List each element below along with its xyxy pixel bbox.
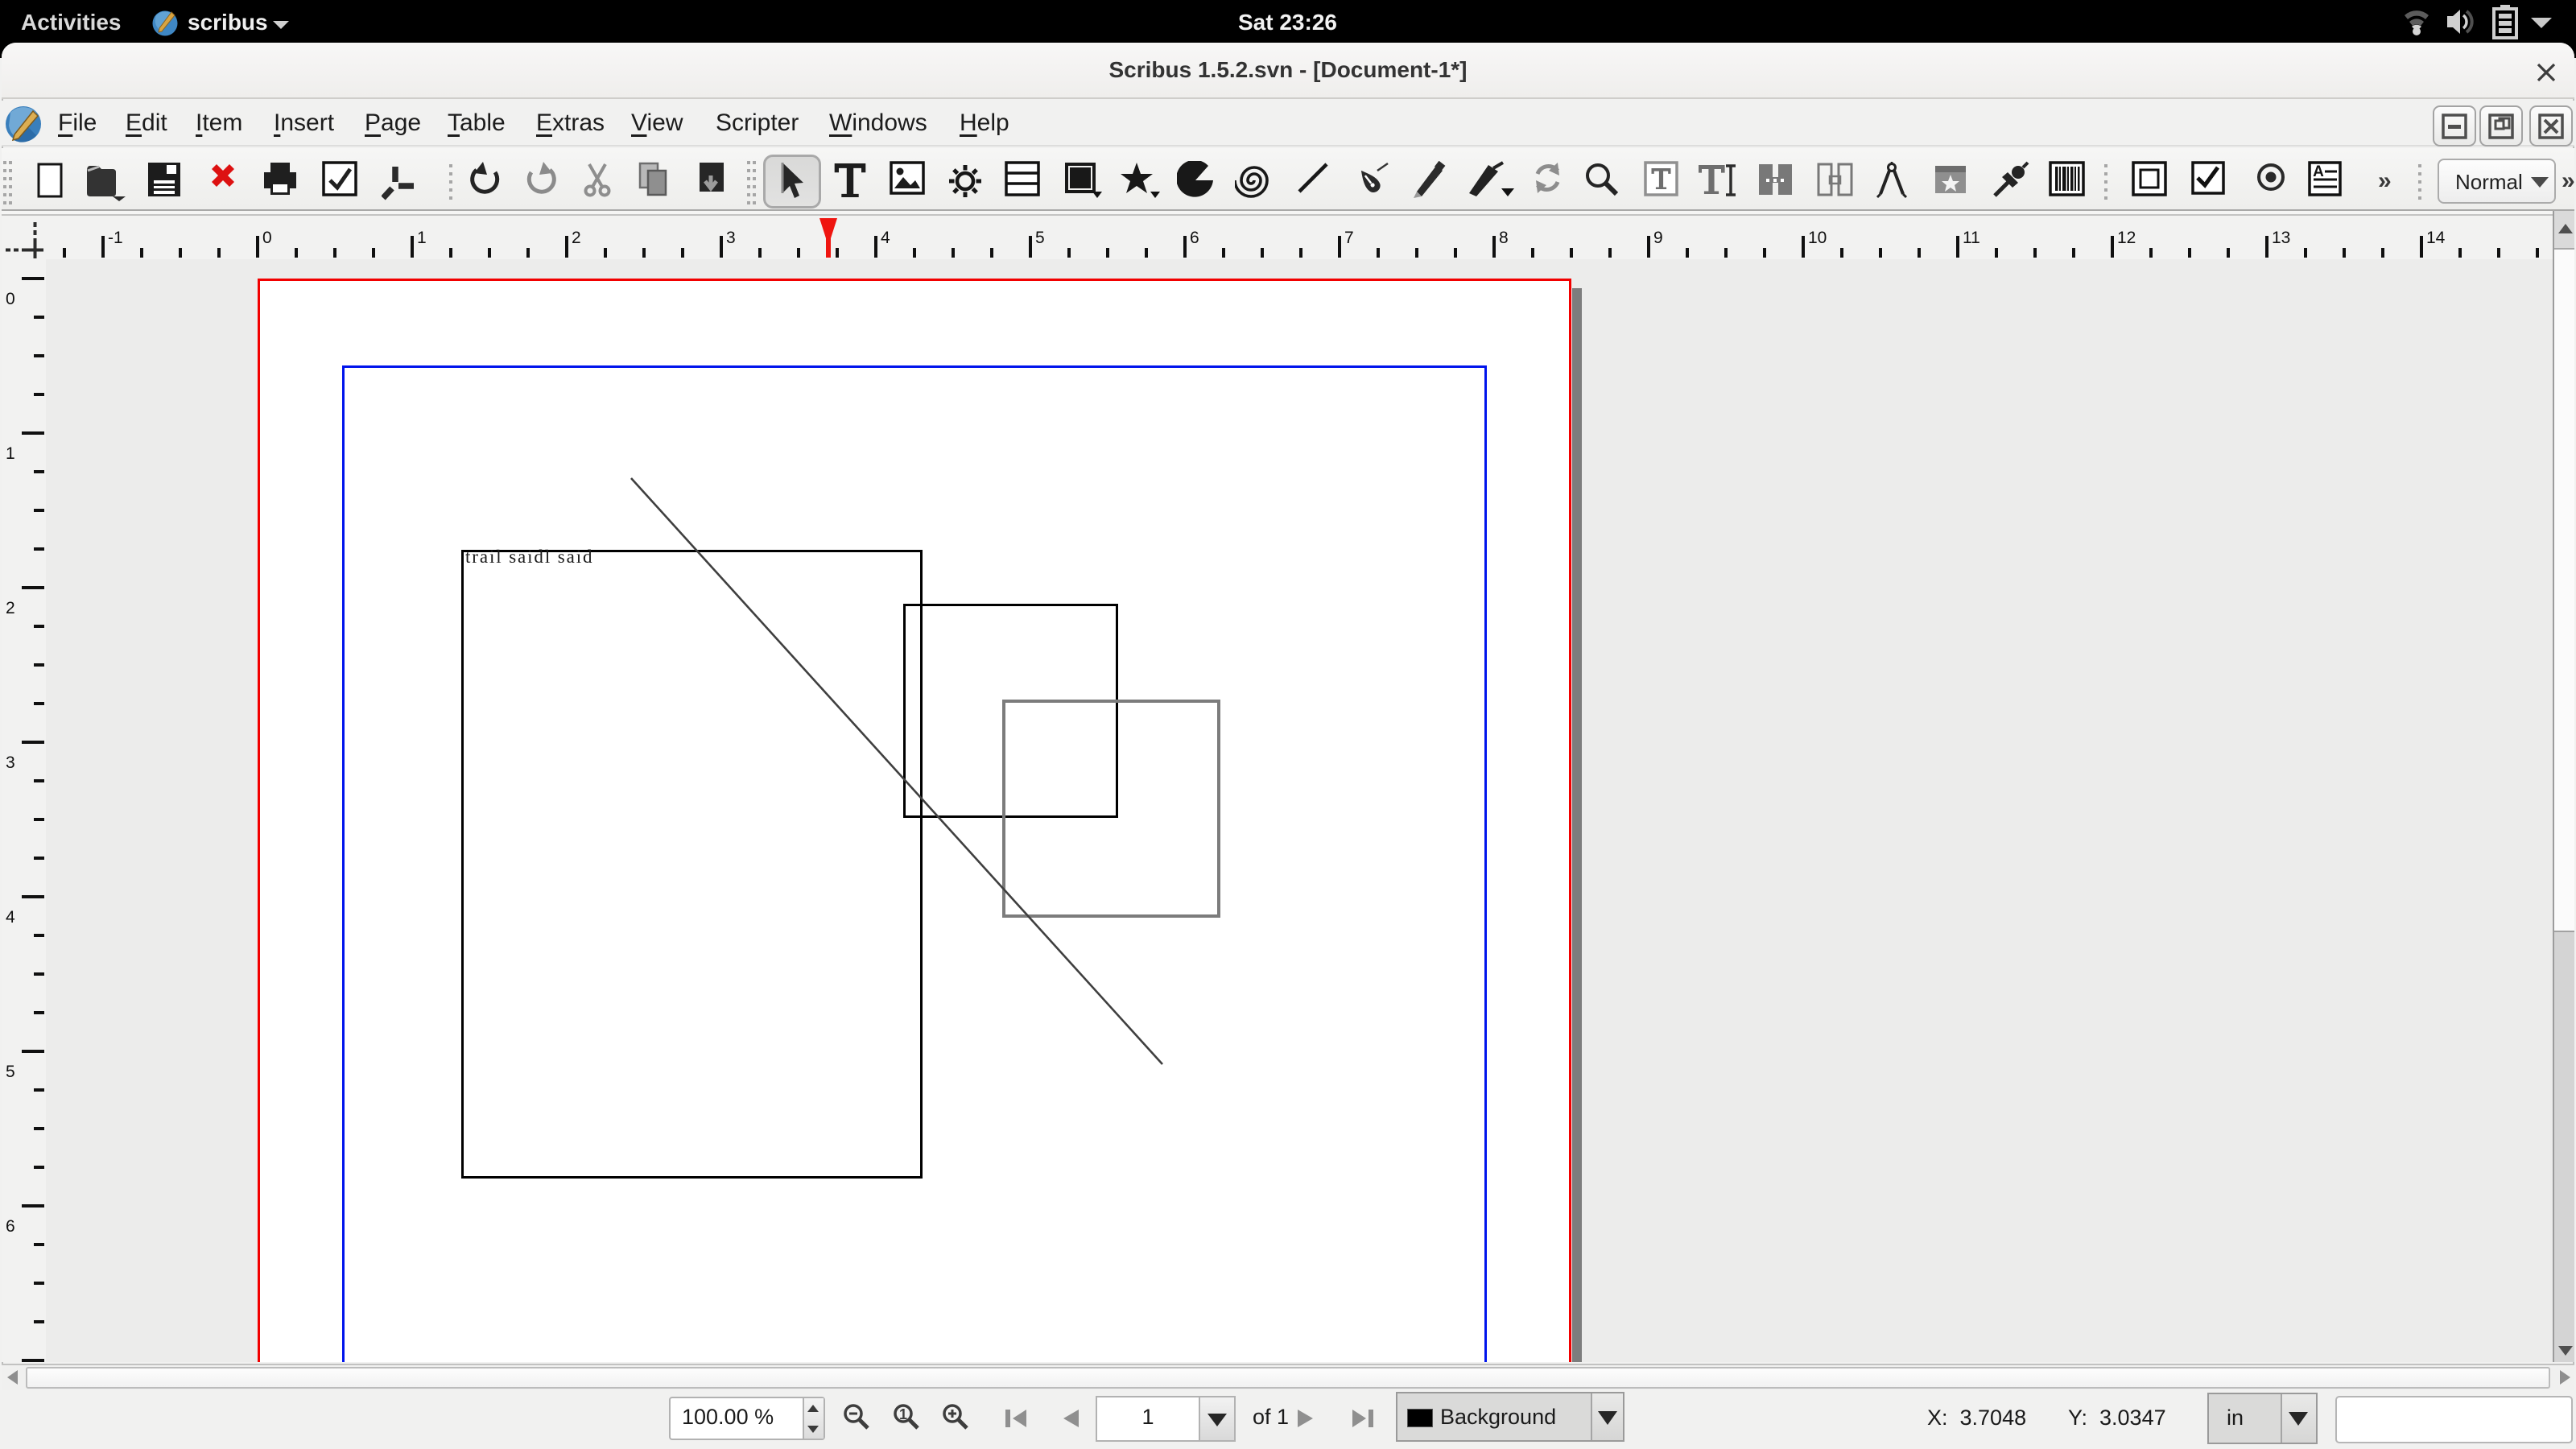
svg-text:2: 2	[572, 229, 581, 247]
svg-text:1: 1	[417, 229, 427, 247]
svg-text:13: 13	[2272, 229, 2290, 247]
svg-text:5: 5	[1035, 229, 1045, 247]
svg-text:10: 10	[1808, 229, 1827, 247]
svg-text:0: 0	[6, 290, 15, 308]
svg-text:12: 12	[2117, 229, 2136, 247]
svg-text:8: 8	[1499, 229, 1509, 247]
svg-text:3: 3	[726, 229, 736, 247]
svg-text:6: 6	[6, 1217, 15, 1236]
svg-text:6: 6	[1190, 229, 1199, 247]
svg-text:0: 0	[262, 229, 272, 247]
svg-text:14: 14	[2426, 229, 2446, 247]
svg-text:4: 4	[6, 908, 15, 927]
svg-text:9: 9	[1653, 229, 1663, 247]
svg-text:1: 1	[6, 444, 15, 463]
svg-text:4: 4	[881, 229, 890, 247]
svg-text:11: 11	[1963, 229, 1980, 247]
svg-text:-1: -1	[108, 229, 123, 247]
svg-text:3: 3	[6, 753, 15, 772]
svg-text:A: A	[2313, 163, 2324, 180]
svg-text:5: 5	[6, 1063, 15, 1081]
svg-text:1: 1	[899, 1406, 907, 1422]
svg-text:2: 2	[6, 599, 15, 617]
svg-text:7: 7	[1344, 229, 1354, 247]
